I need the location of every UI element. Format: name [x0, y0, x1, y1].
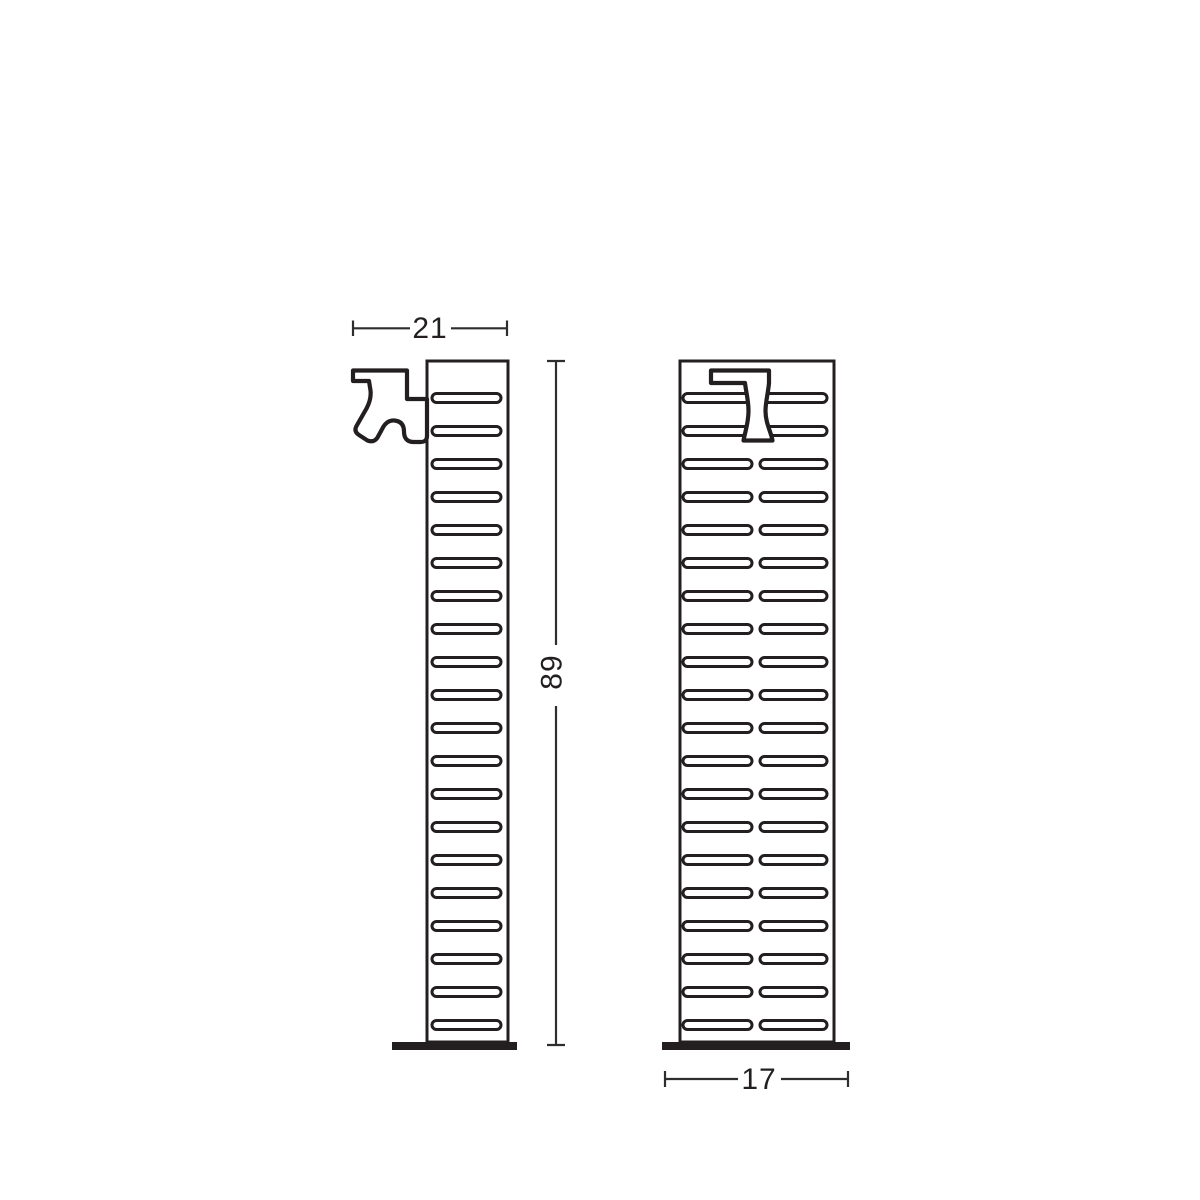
vent-slot: [683, 592, 752, 601]
vent-slot: [760, 922, 827, 931]
vent-slot: [432, 691, 501, 700]
vent-slot: [760, 691, 827, 700]
vent-slot: [432, 625, 501, 634]
vent-slot: [760, 790, 827, 799]
vent-slot: [683, 625, 752, 634]
vent-slot: [683, 526, 752, 535]
vent-slot: [683, 724, 752, 733]
depth-dim-label: 17: [741, 1063, 776, 1096]
vent-slot: [760, 526, 827, 535]
vent-slot: [683, 889, 752, 898]
vent-slot: [432, 757, 501, 766]
vent-slot: [432, 922, 501, 931]
vent-slot: [683, 658, 752, 667]
width-dim-label: 21: [412, 312, 447, 345]
vent-slot: [432, 823, 501, 832]
vent-slot: [760, 658, 827, 667]
vent-slot: [432, 559, 501, 568]
width-dimension: 21: [353, 312, 507, 345]
vent-slot: [683, 790, 752, 799]
vent-slot: [683, 823, 752, 832]
vent-slot: [432, 658, 501, 667]
side-base-plate: [392, 1042, 517, 1050]
tap-side-icon: [353, 371, 427, 443]
vent-slot: [760, 625, 827, 634]
drawing-canvas: 21 89 17: [0, 0, 1200, 1200]
vent-slot: [432, 856, 501, 865]
vent-slot: [683, 856, 752, 865]
vent-slot: [760, 493, 827, 502]
vent-slot: [432, 460, 501, 469]
vent-slot: [760, 1021, 827, 1030]
front-view: [662, 361, 850, 1050]
vent-slot: [683, 1021, 752, 1030]
vent-slot: [683, 955, 752, 964]
vent-slot: [432, 790, 501, 799]
vent-slot: [760, 823, 827, 832]
vent-slot: [760, 856, 827, 865]
vent-slot: [432, 592, 501, 601]
depth-dimension: 17: [665, 1063, 848, 1096]
vent-slot: [760, 724, 827, 733]
vent-slot: [432, 955, 501, 964]
vent-slot: [432, 988, 501, 997]
vent-slot: [760, 559, 827, 568]
height-dimension: 89: [536, 361, 569, 1045]
vent-slot: [683, 922, 752, 931]
vent-slot: [683, 427, 752, 436]
vent-slot: [432, 889, 501, 898]
vent-slot: [432, 394, 501, 403]
vent-slot: [760, 592, 827, 601]
fountain-technical-drawing: 21 89 17: [0, 0, 1200, 1200]
vent-slot: [683, 460, 752, 469]
vent-slot: [432, 526, 501, 535]
vent-slot: [760, 955, 827, 964]
vent-slot: [760, 988, 827, 997]
vent-slot: [760, 394, 827, 403]
vent-slot: [432, 493, 501, 502]
vent-slot: [683, 988, 752, 997]
vent-slot: [683, 757, 752, 766]
vent-slot: [683, 493, 752, 502]
side-view: [353, 361, 517, 1050]
vent-slot: [760, 757, 827, 766]
vent-slot: [432, 427, 501, 436]
vent-slot: [432, 724, 501, 733]
vent-slot: [683, 394, 752, 403]
vent-slot: [432, 1021, 501, 1030]
vent-slot: [683, 559, 752, 568]
vent-slot: [760, 460, 827, 469]
vent-slot: [683, 691, 752, 700]
front-base-plate: [662, 1042, 850, 1050]
vent-slot: [760, 889, 827, 898]
height-dim-label: 89: [536, 654, 569, 689]
